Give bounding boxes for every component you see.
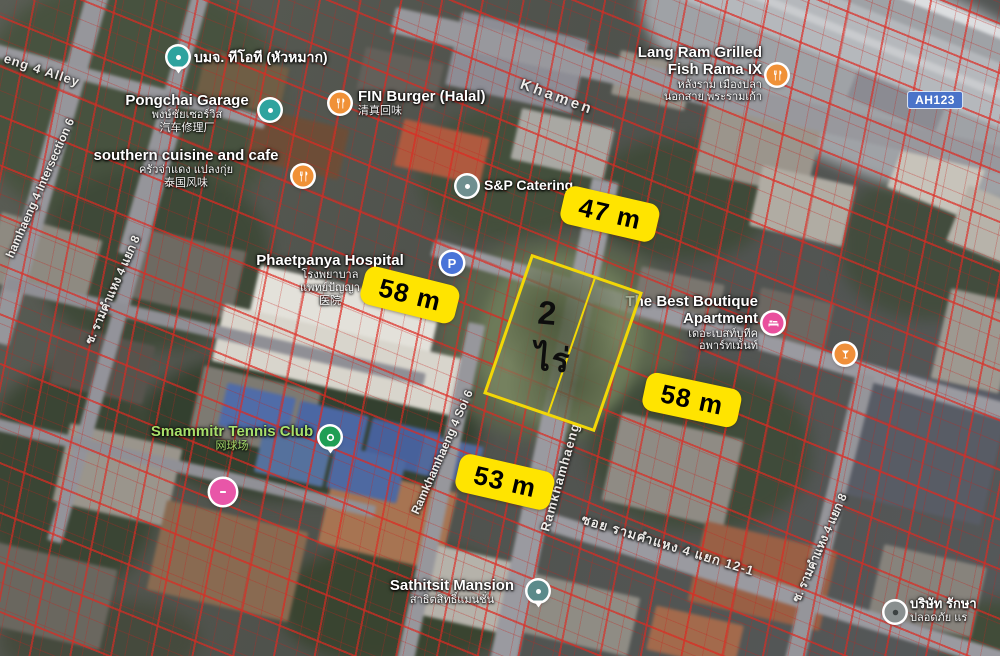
measurement-layer: 47 m58 m58 m53 m <box>0 0 1000 656</box>
measurement-chip-bottom: 53 m <box>453 452 557 512</box>
measurement-chip-right: 58 m <box>640 371 743 429</box>
satellite-map[interactable]: eng 4 AlleyKhamenhamhaeng 4 Intersection… <box>0 0 1000 656</box>
measurement-chip-left: 58 m <box>358 264 462 325</box>
measurement-chip-top: 47 m <box>558 184 662 244</box>
